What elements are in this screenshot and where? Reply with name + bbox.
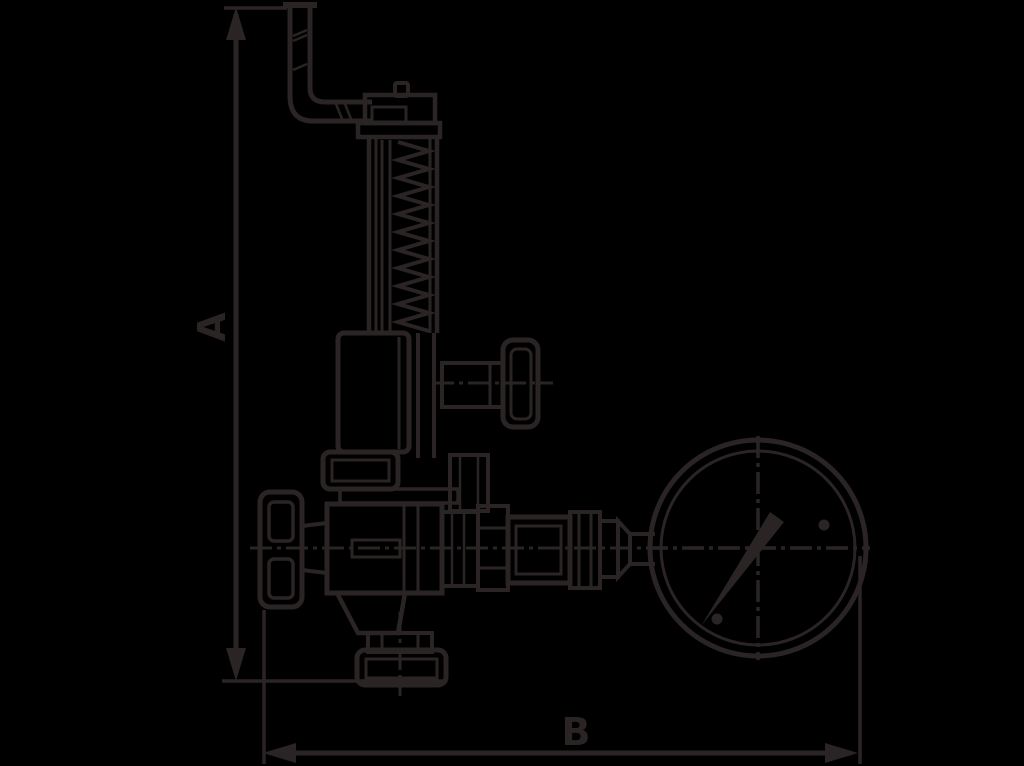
- right-handwheel-stem: [442, 363, 503, 407]
- bonnet-cap-lip: [358, 123, 440, 137]
- right-handwheel: [432, 340, 553, 427]
- left-stem-top: [302, 523, 327, 526]
- lever-inner-wall: [310, 6, 372, 102]
- lever-tick: [293, 64, 307, 70]
- adjuster-flange-slot: [332, 460, 389, 481]
- pressure-gauge: [646, 436, 870, 660]
- dimension-b: B: [263, 556, 860, 764]
- adjuster-flange: [323, 452, 398, 489]
- left-handwheel-slot: [269, 502, 293, 541]
- dim-a-label: A: [190, 312, 234, 342]
- test-lever: [283, 5, 372, 121]
- left-handwheel-slot: [269, 559, 293, 598]
- dim-b-arrow-right: [825, 743, 858, 763]
- spring-bonnet: [323, 83, 488, 511]
- dim-b-arrow-left: [263, 743, 296, 763]
- dim-a-arrow-up: [226, 7, 246, 40]
- union-nut-slot: [516, 526, 561, 574]
- valve-and-gauge-drawing: A B: [0, 0, 1024, 766]
- technical-drawing-canvas: A B: [0, 0, 1024, 766]
- coil-spring: [398, 142, 429, 331]
- bonnet-cap: [365, 95, 435, 123]
- gauge-screw: [712, 614, 723, 625]
- valve-body: [327, 504, 478, 696]
- left-stem-bottom: [302, 570, 327, 573]
- body-reducer: [337, 593, 405, 633]
- dim-b-label: B: [562, 710, 591, 754]
- lever-tick: [336, 104, 342, 119]
- coupling-piece: [570, 512, 600, 588]
- gauge-needle: [701, 512, 784, 626]
- lever-tick: [345, 104, 351, 119]
- dim-a-arrow-down: [226, 648, 246, 681]
- bonnet-cap-detail: [372, 107, 406, 122]
- gauge-screw: [819, 520, 830, 531]
